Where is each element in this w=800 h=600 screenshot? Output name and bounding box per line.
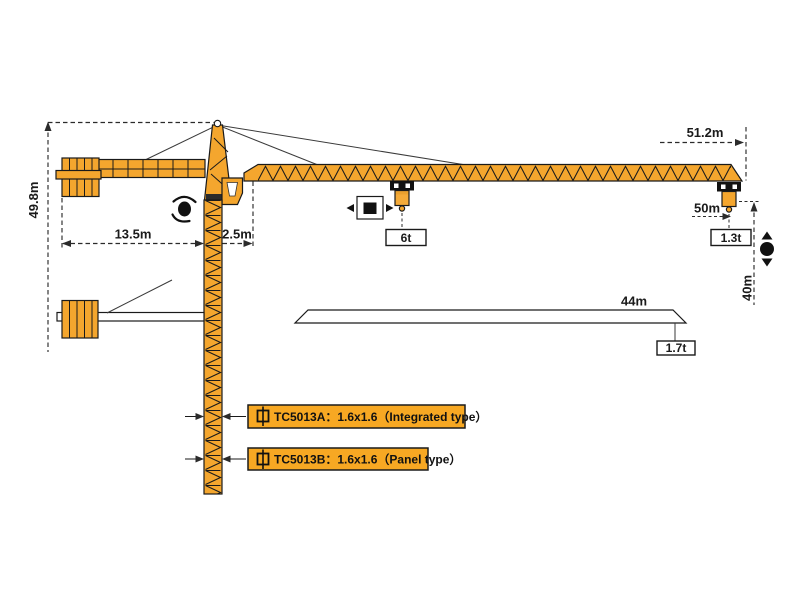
tip-load: 1.3t (711, 230, 751, 246)
counter-jib (56, 158, 205, 197)
dim-hook-height: 40m (740, 202, 758, 305)
counter-jib-length-label: 13.5m (115, 227, 152, 242)
operator-cab (222, 178, 243, 205)
mast-label-a: TC5013A：1.6x1.6（Integrated type） (248, 405, 487, 428)
hook-radius-label: 50m (694, 201, 720, 216)
max-load: 6t (386, 230, 426, 246)
tip-load-label: 1.3t (721, 231, 742, 245)
apex-pulley-icon (214, 120, 220, 126)
max-load-label: 6t (401, 231, 412, 245)
total-height-label: 49.8m (26, 182, 41, 219)
rear-offset-label: 2.5m (222, 227, 252, 242)
mid-trolley-hook (390, 181, 414, 229)
slewing-icon (173, 197, 196, 222)
jib-radius-label: 51.2m (687, 125, 724, 140)
mast-label-b: TC5013B：1.6x1.6（Panel type） (248, 448, 461, 470)
alt-jib-length-label: 44m (621, 294, 647, 309)
main-jib (244, 165, 742, 182)
alt-counter-jib (57, 280, 204, 338)
tower-crane-dimension-diagram: 44m 1.7t 49.8m 13.5m 2.5m 51.2m 50m (0, 0, 800, 600)
hook-height-label: 40m (740, 275, 755, 301)
mast-label-a-text: TC5013A：1.6x1.6（Integrated type） (274, 409, 487, 424)
tower-mast (204, 200, 222, 494)
mast-label-b-text: TC5013B：1.6x1.6（Panel type） (274, 452, 461, 467)
tip-trolley-hook (717, 182, 741, 229)
trolley-travel-icon (347, 197, 394, 220)
alt-jib-44m: 44m 1.7t (295, 294, 695, 356)
alt-tip-load-label: 1.7t (666, 341, 687, 355)
hoist-icon (760, 232, 774, 267)
